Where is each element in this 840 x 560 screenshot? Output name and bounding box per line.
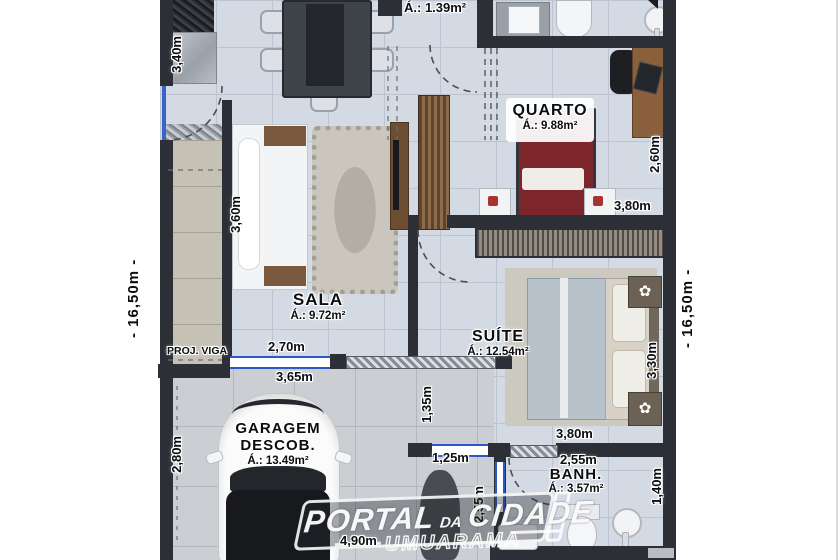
watermark-umuarama: UMUARAMA [385, 529, 522, 557]
dim-1-40: 1,40m [650, 468, 663, 505]
threshold-texture [166, 124, 223, 140]
quarto-label: QUARTO Á.: 9.88m² [506, 98, 594, 142]
suite-plant-table: ✿ [628, 276, 662, 308]
wall-corridor-end [158, 364, 230, 378]
sala-area: Á.: 9.72m² [270, 310, 366, 323]
sofa-wood-trim [264, 266, 306, 286]
sala-window [230, 356, 330, 369]
tv [393, 140, 399, 210]
suite-bed-fold [560, 278, 568, 418]
garagem-area: Á.: 13.49m² [230, 455, 326, 468]
quarto-bed-sheet [522, 168, 584, 190]
suite-label: SUÍTE Á.: 12.54m² [448, 328, 548, 360]
floor-plan: ✿ ✿ Á.: 1.39m² QUARTO Á.: 9.88m² SALA Á.… [0, 0, 840, 560]
dim-2-55: 2,55m [560, 453, 597, 466]
dim-3-80-suite: 3,80m [556, 427, 593, 440]
garagem-name2: DESCOB. [230, 437, 326, 454]
dim-3-30: 3,30m [645, 342, 658, 379]
suite-name: SUÍTE [448, 328, 548, 346]
nightstand-decor [593, 196, 603, 206]
dim-total-left: - 16,50m - [126, 222, 141, 338]
suite-wardrobe [475, 228, 667, 258]
dim-1-25: 1,25m [432, 451, 469, 464]
nightstand-decor [488, 196, 498, 206]
dim-4-90: 4,90m [340, 534, 377, 547]
slat-divider [418, 95, 450, 230]
island-block [378, 0, 402, 16]
wall-pier-sala [330, 354, 346, 369]
sala-name: SALA [270, 290, 366, 310]
watermark-cidade: CIDADE [466, 494, 595, 535]
dim-2-80: 2,80m [170, 436, 183, 473]
wall-corridor-inner [222, 100, 232, 366]
dim-3-65: 3,65m [276, 370, 313, 383]
dim-total-right: - 16,50m - [680, 232, 695, 348]
entry-glass-door [162, 86, 166, 140]
quarto-area: Á.: 9.88m² [506, 120, 594, 133]
watermark: PORTAL DA CIDADE UMUARAMA [287, 471, 570, 560]
dim-2-70: 2,70m [268, 340, 305, 353]
edge-artifact [836, 0, 838, 560]
dim-3-60: 3,60m [229, 196, 242, 233]
dim-2-60: 2,60m [648, 136, 661, 173]
wall-right [663, 0, 676, 560]
dim-1-35: 1,35m [420, 386, 433, 423]
topbath-area-label: Á.: 1.39m² [404, 1, 466, 14]
wall-topbath-bottom [477, 36, 663, 48]
dim-3-40: 3,40m [170, 36, 183, 73]
dim-3-80-quarto: 3,80m [614, 199, 651, 212]
sofa-wood-trim [264, 126, 306, 146]
quarto-name: QUARTO [506, 102, 594, 120]
side-corridor-floor [172, 140, 222, 366]
bottom-window-block [648, 548, 674, 558]
rug [312, 126, 398, 294]
topbath-toilet [556, 0, 592, 38]
garagem-label: GARAGEM DESCOB. Á.: 13.49m² [230, 420, 326, 468]
wall-suite-bottom-b [488, 443, 510, 457]
sala-label: SALA Á.: 9.72m² [270, 290, 366, 323]
wall-quarto-bottom [447, 215, 663, 228]
dining-table-runner [306, 4, 344, 86]
suite-plant-table: ✿ [628, 392, 662, 426]
proj-viga-label: PROJ. VIGA [167, 346, 227, 357]
topbath-sink [508, 6, 540, 34]
watermark-da: DA [439, 514, 462, 532]
suite-area: Á.: 12.54m² [448, 346, 548, 359]
banh-threshold-hatch [510, 445, 558, 458]
garagem-name: GARAGEM [230, 420, 326, 437]
wall-hall-suite [408, 215, 418, 368]
wall-suite-bottom-a [408, 443, 432, 457]
